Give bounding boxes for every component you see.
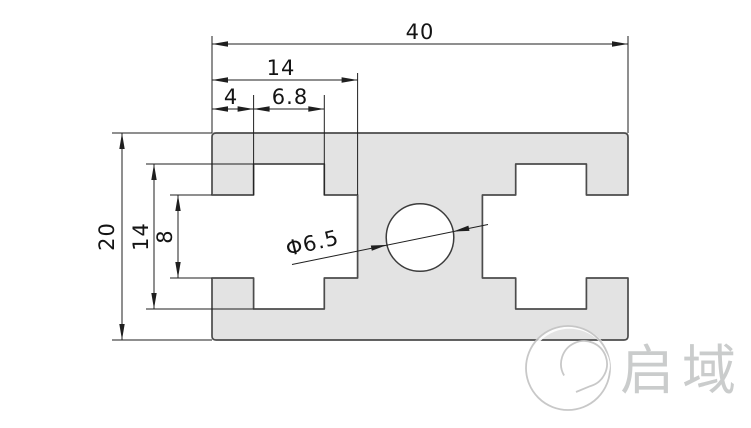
dim-text-slot-opening: 8	[153, 229, 177, 243]
center-hole	[386, 204, 454, 272]
drawing-canvas: 40 14 4 6.8 20 14	[0, 0, 751, 428]
dim-text-overall-height: 20	[95, 222, 119, 251]
watermark-brand-text: 启域	[620, 339, 744, 402]
dim-text-overall-width: 40	[406, 20, 435, 44]
technical-drawing: 40 14 4 6.8 20 14	[0, 0, 751, 428]
dim-text-slot-depth: 14	[267, 56, 296, 80]
dim-text-slot-neck-width: 6.8	[272, 85, 308, 109]
dim-text-slot-inner-height: 14	[129, 222, 153, 251]
dim-text-slot-throat: 4	[224, 85, 238, 109]
